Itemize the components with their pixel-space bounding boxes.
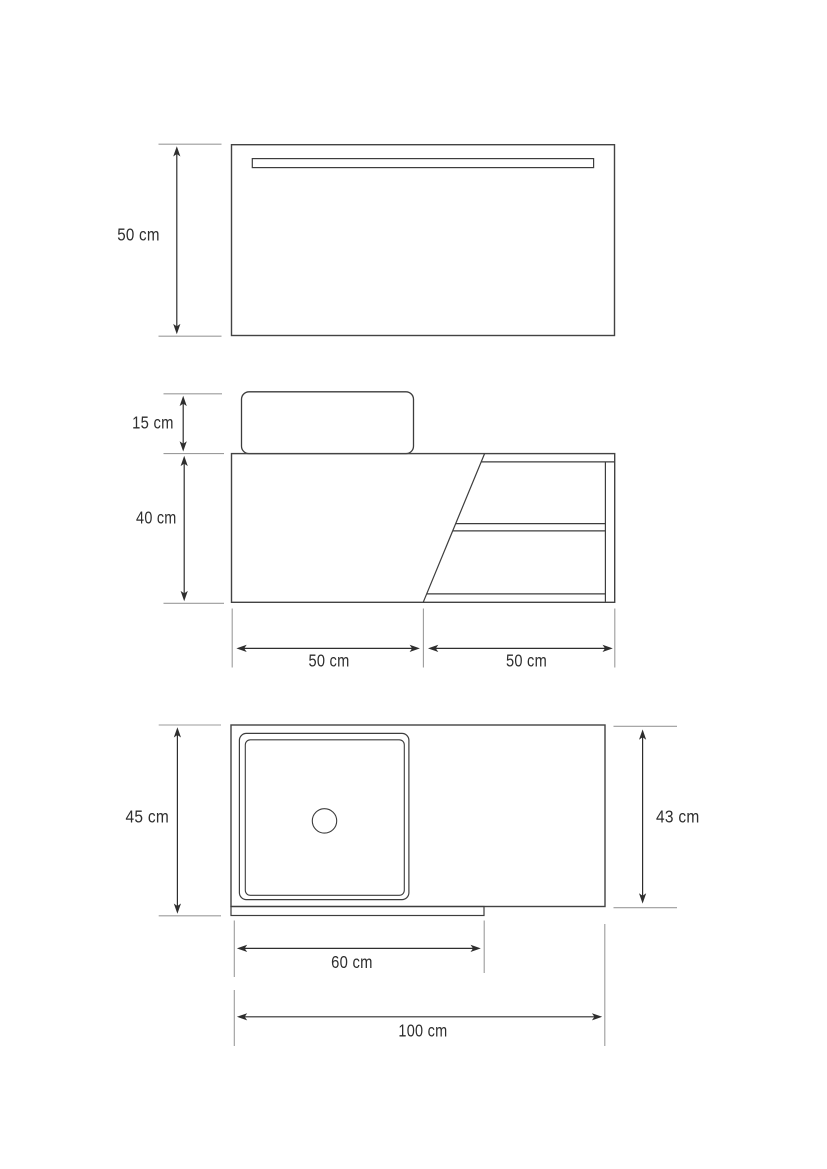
svg-text:50 cm: 50 cm — [309, 651, 350, 671]
svg-text:60 cm: 60 cm — [331, 952, 373, 972]
svg-text:100 cm: 100 cm — [398, 1021, 447, 1041]
svg-text:43 cm: 43 cm — [656, 806, 700, 826]
svg-text:45 cm: 45 cm — [126, 806, 170, 826]
svg-text:50 cm: 50 cm — [506, 651, 547, 671]
svg-text:40 cm: 40 cm — [136, 507, 177, 527]
svg-text:15 cm: 15 cm — [132, 412, 174, 432]
svg-text:50 cm: 50 cm — [117, 225, 160, 245]
